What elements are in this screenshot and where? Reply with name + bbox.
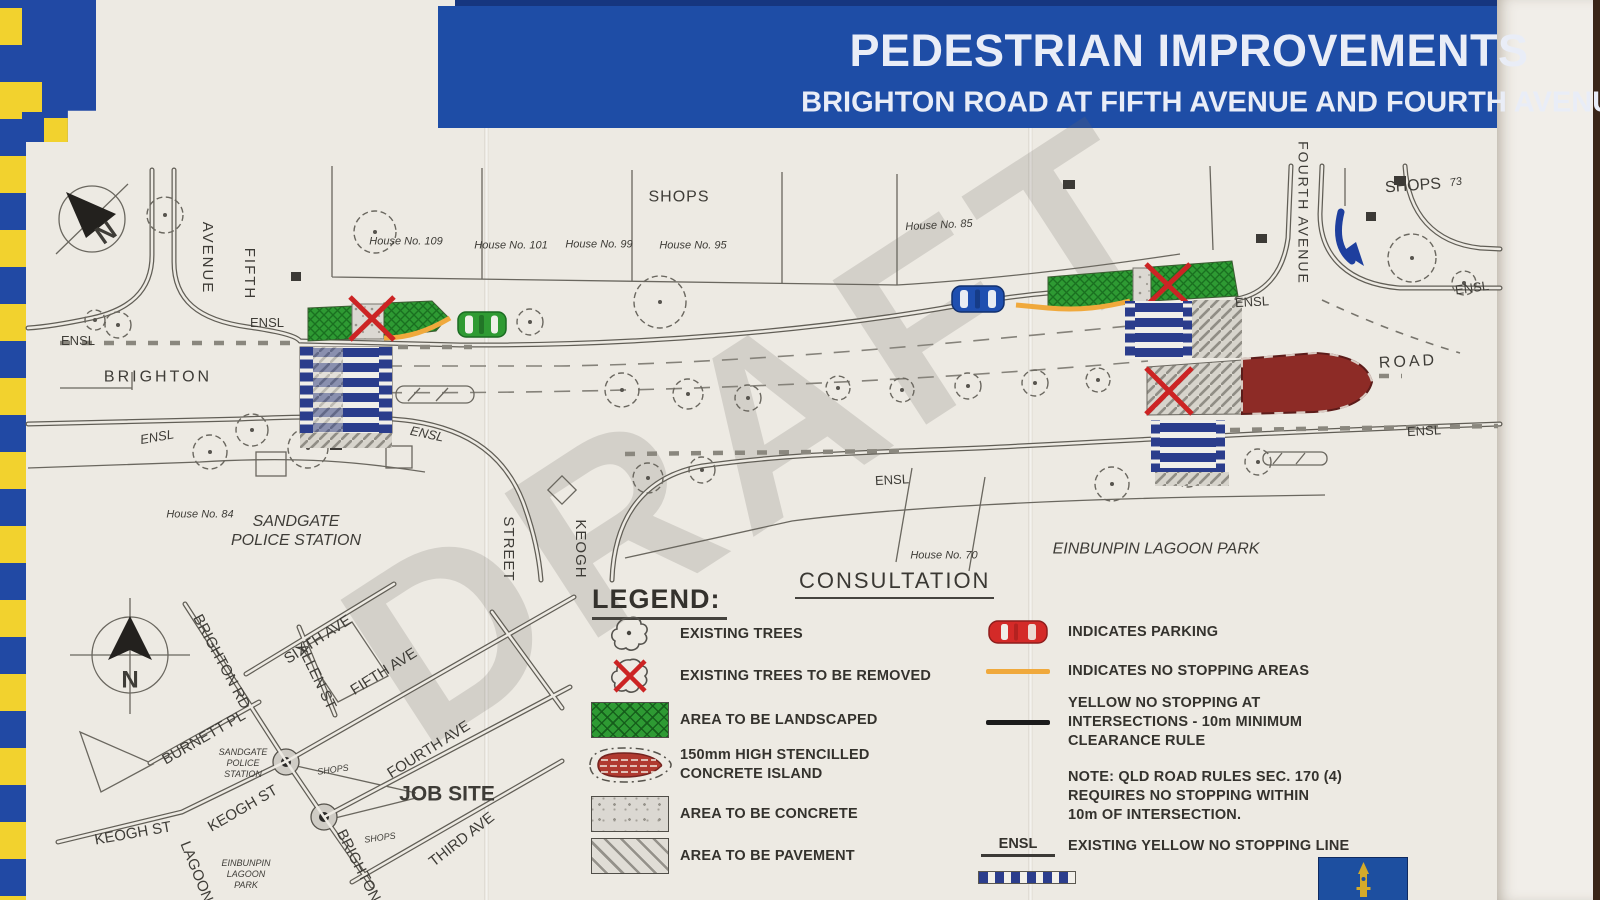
map-label: KEOGH ST (93, 818, 172, 849)
brighton-road-line (185, 604, 372, 886)
pavement-area (300, 433, 392, 448)
plan-label: BRIGHTON (104, 367, 212, 386)
legend-item-label: 150mm HIGH STENCILLED CONCRETE ISLAND (680, 746, 870, 784)
parked-car-blue (952, 286, 1004, 312)
plan-label: ENSL (139, 426, 175, 447)
lot-boundaries (28, 166, 1345, 571)
plan-label: ENSL (875, 471, 910, 488)
map-label: BRIGHTON RD (188, 612, 253, 713)
map-label: FIFTH AVE (348, 645, 421, 700)
landscaped-area (384, 301, 448, 337)
map-label: LAGOON (176, 839, 217, 900)
consultation-note-label: EXISTING YELLOW NO STOPPING LINE (1068, 837, 1349, 856)
legend-item: AREA TO BE LANDSCAPED (580, 702, 878, 738)
plan-label: FIFTH (240, 248, 258, 301)
fifth-avenue-crossing (300, 297, 506, 448)
council-logo (1318, 857, 1408, 900)
plan-label: ENSL (1235, 293, 1270, 310)
table-edge (1593, 0, 1600, 900)
plan-label: AVENUE (198, 222, 216, 295)
plan-label: ENSL (61, 333, 95, 349)
title-banner: PEDESTRIAN IMPROVEMENTS BRIGHTON ROAD AT… (438, 6, 1497, 128)
no-stopping-line (384, 318, 450, 338)
locality-compass-north-icon (70, 598, 190, 714)
stencilled-concrete-island (1242, 353, 1372, 414)
legend-item: 150mm HIGH STENCILLED CONCRETE ISLAND (580, 742, 870, 788)
plan-label: KEOGH (571, 519, 589, 578)
plan-label: SHOPS (648, 187, 709, 206)
tree-icon (580, 614, 680, 654)
pavement-area (1192, 300, 1242, 358)
no-stopping-line (1016, 301, 1130, 309)
legend-item-label: EXISTING TREES TO BE REMOVED (680, 667, 931, 686)
compass-north-icon (56, 184, 128, 254)
consultation-note: INDICATES PARKING (968, 618, 1218, 646)
plan-label: House No. 85 (905, 218, 973, 235)
concrete-swatch (580, 796, 680, 832)
consultation-heading: CONSULTATION (795, 568, 994, 599)
plan-label: SHOPS (1384, 174, 1441, 197)
plan-label: 73 (1449, 175, 1463, 190)
consultation-note-label: YELLOW NO STOPPING AT INTERSECTIONS - 10… (1068, 694, 1302, 751)
job-site-marker (273, 749, 337, 830)
black-line-icon (968, 720, 1068, 725)
tree-removal-cross-icon (1146, 264, 1190, 306)
partial-legend-symbol (978, 871, 1076, 884)
map-label: EINBUNPIN LAGOON PARK (221, 858, 270, 890)
zebra-crossing (1135, 301, 1183, 359)
road-kerbs (28, 166, 1500, 580)
ensl-line-symbol: ENSL (968, 836, 1068, 857)
paper-fold-margin (1497, 0, 1594, 900)
street-furniture (291, 176, 1406, 450)
parking-car-icon (968, 618, 1068, 646)
map-label: SHOPS (317, 762, 350, 777)
map-label: JOB SITE (399, 781, 495, 806)
consultation-note: INDICATES NO STOPPING AREAS (968, 662, 1309, 681)
plan-label: House No. 70 (910, 549, 977, 562)
plan-label: House No. 95 (659, 239, 726, 252)
zebra-crossing (1160, 420, 1216, 472)
legend-item-label: AREA TO BE LANDSCAPED (680, 711, 878, 730)
locality-map (58, 584, 574, 886)
consultation-note: NOTE: QLD ROAD RULES SEC. 170 (4) REQUIR… (968, 768, 1342, 825)
landscaped-area (308, 306, 352, 341)
plan-label: ROAD (1378, 351, 1437, 373)
plan-label: ENSL (1454, 278, 1490, 298)
map-label: SANDGATE POLICE STATION (219, 747, 268, 779)
park-boundary (625, 495, 1325, 558)
consultation-note: ENSLEXISTING YELLOW NO STOPPING LINE (968, 836, 1349, 857)
existing-trees (85, 197, 1476, 501)
landscaped-area (1048, 270, 1133, 309)
plan-label: House No. 99 (565, 238, 632, 251)
tree-removal-cross-icon (350, 297, 394, 340)
map-label: ALLEN ST (292, 641, 339, 713)
brighton-road-line (185, 604, 372, 886)
zebra-crossing (313, 347, 379, 433)
plan-label: STREET (499, 516, 517, 581)
legend-item: EXISTING TREES TO BE REMOVED (580, 656, 931, 696)
plan-label: House No. 101 (474, 239, 547, 252)
landscaped-area (1151, 261, 1238, 301)
legend-item-label: AREA TO BE CONCRETE (680, 805, 858, 824)
clock-tower-icon (1320, 859, 1406, 900)
map-label: N (121, 667, 138, 696)
pavement-swatch (580, 838, 680, 874)
plan-label: House No. 84 (166, 508, 233, 521)
concrete-area (1133, 268, 1151, 304)
legend-item: AREA TO BE PAVEMENT (580, 838, 855, 874)
map-label: THIRD AVE (426, 809, 499, 871)
map-label: BURNETT PL (159, 707, 249, 769)
legend-item-label: EXISTING TREES (680, 625, 803, 644)
plan-label: FOURTH AVENUE (1295, 141, 1312, 285)
map-label: SIXTH AVE (281, 612, 355, 669)
page-title: PEDESTRIAN IMPROVEMENTS (849, 25, 1528, 77)
tree-removal-cross-icon (1146, 368, 1192, 414)
concrete-area (352, 304, 384, 339)
map-label: KEOGH ST (205, 782, 281, 836)
legend-item: AREA TO BE CONCRETE (580, 796, 858, 832)
plan-label: ENSL (409, 423, 445, 445)
plan-label: ENSL (1407, 422, 1442, 439)
fold-crease (484, 0, 489, 900)
pavement-area (1155, 472, 1229, 486)
checker-border-corner (22, 0, 96, 142)
map-label: SHOPS (364, 830, 397, 845)
turn-arrow-icon (1339, 212, 1352, 261)
map-label: FOURTH AVE (384, 717, 474, 782)
plan-label: ENSL (250, 315, 284, 331)
consultation-note-label: INDICATES NO STOPPING AREAS (1068, 662, 1309, 681)
landscaped-swatch (580, 702, 680, 738)
fourth-avenue-crossing (952, 212, 1372, 486)
parked-car-green (458, 312, 506, 337)
orange-line-icon (968, 669, 1068, 674)
road-markings (60, 300, 1498, 465)
fold-crease (1028, 0, 1033, 900)
consultation-note: YELLOW NO STOPPING AT INTERSECTIONS - 10… (968, 694, 1302, 751)
plan-label: EINBUNPIN LAGOON PARK (1053, 539, 1260, 558)
scanned-plan-document: PEDESTRIAN IMPROVEMENTS BRIGHTON ROAD AT… (0, 0, 1600, 900)
plan-label: N (89, 215, 122, 251)
consultation-note-label: NOTE: QLD ROAD RULES SEC. 170 (4) REQUIR… (1068, 768, 1342, 825)
consultation-note-label: INDICATES PARKING (1068, 623, 1218, 642)
concrete-island-swatch (580, 742, 680, 788)
plan-label: SANDGATE POLICE STATION (231, 512, 361, 550)
plan-label: House No. 109 (369, 235, 442, 248)
map-label: BRIGHTON (332, 827, 384, 900)
legend-item: EXISTING TREES (580, 614, 803, 654)
legend-item-label: AREA TO BE PAVEMENT (680, 847, 855, 866)
page-subtitle: BRIGHTON ROAD AT FIFTH AVENUE AND FOURTH… (801, 87, 1600, 120)
tree-removed-icon (580, 656, 680, 696)
